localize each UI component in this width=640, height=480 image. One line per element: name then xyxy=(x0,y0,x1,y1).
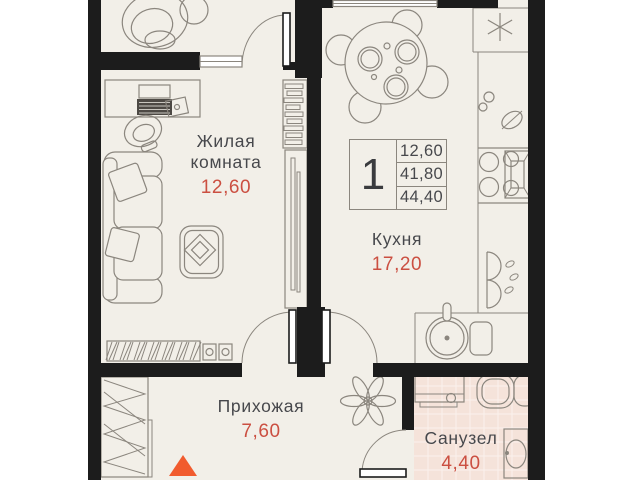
wall-center xyxy=(307,70,321,311)
wall-top-1 xyxy=(322,0,333,8)
legend-values: 12,60 41,80 44,40 xyxy=(396,140,446,209)
wall-balcony xyxy=(101,52,200,70)
coffee-table xyxy=(180,226,223,278)
wall-kitchen-bottom xyxy=(373,363,528,377)
pillow xyxy=(105,227,140,262)
window-balcony xyxy=(200,56,242,67)
room-name: Жилая xyxy=(190,131,261,152)
room-label-bathroom: Санузел 4,40 xyxy=(424,428,497,474)
room-area: 12,60 xyxy=(190,177,261,198)
wall-living-bottom xyxy=(88,363,242,377)
room-area: 4,40 xyxy=(424,453,497,474)
wall-right xyxy=(528,0,545,480)
wall-bathroom-left xyxy=(402,372,414,430)
room-name: Кухня xyxy=(372,229,422,250)
room-name: комната xyxy=(190,152,261,173)
room-area: 17,20 xyxy=(372,254,422,275)
legend-area-no-balcony: 41,80 xyxy=(397,162,446,185)
legend-area-living: 12,60 xyxy=(397,140,446,162)
faucet xyxy=(443,303,451,321)
wall-pier xyxy=(295,0,322,78)
room-label-hallway: Прихожая 7,60 xyxy=(218,396,305,442)
wall-door-stub xyxy=(297,307,325,377)
legend-rooms-count: 1 xyxy=(350,140,396,209)
room-name: Прихожая xyxy=(218,396,305,417)
floor-plan: Жилая комната 12,60 Кухня 17,20 Прихожая… xyxy=(0,0,640,480)
room-area: 7,60 xyxy=(218,421,305,442)
legend-box: 1 12,60 41,80 44,40 xyxy=(349,139,447,210)
wall-top-2 xyxy=(437,0,498,8)
sofa xyxy=(103,152,162,303)
room-label-kitchen: Кухня 17,20 xyxy=(372,229,422,275)
window-kitchen xyxy=(333,1,437,7)
room-label-living: Жилая комната 12,60 xyxy=(190,131,261,198)
room-name: Санузел xyxy=(424,428,497,449)
legend-area-total: 44,40 xyxy=(397,186,446,209)
wall-left xyxy=(88,0,101,480)
